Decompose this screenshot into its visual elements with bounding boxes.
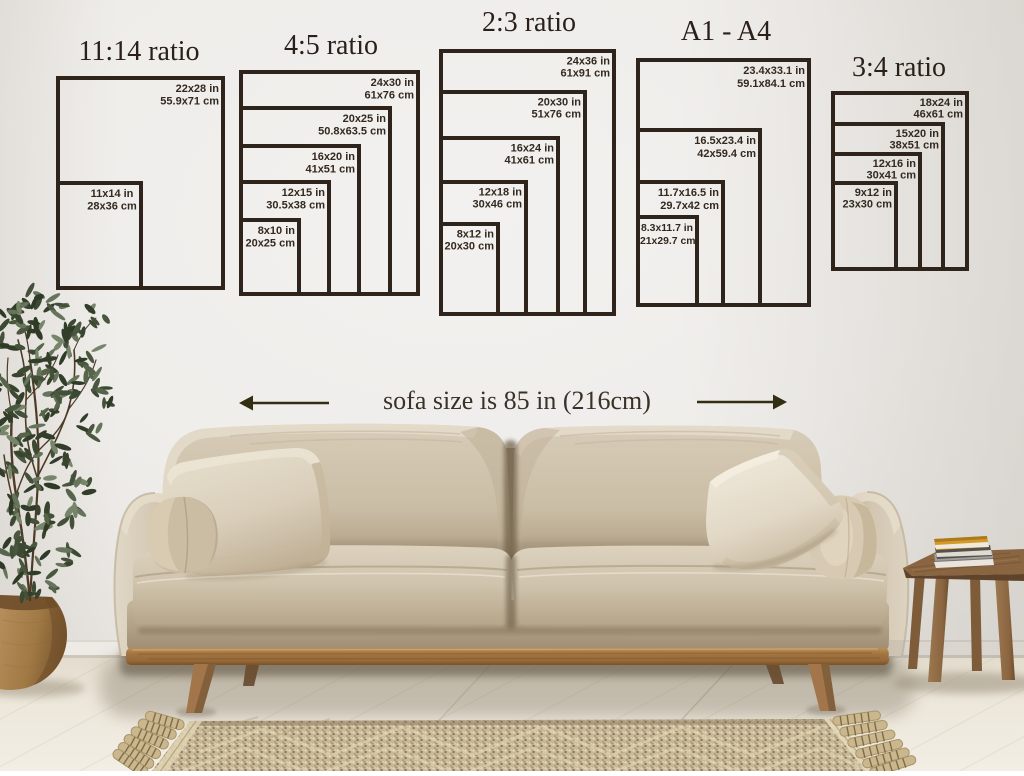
svg-text:8x10 in: 8x10 in xyxy=(258,225,296,237)
svg-text:20x30 cm: 20x30 cm xyxy=(444,241,494,253)
svg-text:4:5 ratio: 4:5 ratio xyxy=(284,30,378,61)
svg-text:59.1x84.1 cm: 59.1x84.1 cm xyxy=(737,78,805,90)
svg-text:8.3x11.7 in: 8.3x11.7 in xyxy=(641,223,693,234)
svg-text:16x24 in: 16x24 in xyxy=(511,143,555,155)
svg-text:61x91 cm: 61x91 cm xyxy=(560,68,610,80)
svg-text:11.7x16.5 in: 11.7x16.5 in xyxy=(658,187,719,199)
svg-text:46x61 cm: 46x61 cm xyxy=(913,109,963,121)
svg-text:16x20 in: 16x20 in xyxy=(312,151,356,163)
svg-text:16.5x23.4 in: 16.5x23.4 in xyxy=(694,135,756,147)
svg-text:12x18 in: 12x18 in xyxy=(479,187,523,199)
svg-text:50.8x63.5 cm: 50.8x63.5 cm xyxy=(318,126,386,138)
svg-text:20x25 in: 20x25 in xyxy=(343,113,387,125)
svg-text:41x61 cm: 41x61 cm xyxy=(504,155,554,167)
svg-text:23.4x33.1 in: 23.4x33.1 in xyxy=(743,65,805,77)
svg-text:30.5x38 cm: 30.5x38 cm xyxy=(266,200,325,212)
svg-text:15x20 in: 15x20 in xyxy=(896,128,940,140)
svg-text:29.7x42 cm: 29.7x42 cm xyxy=(660,200,719,212)
svg-text:3:4 ratio: 3:4 ratio xyxy=(852,52,946,83)
svg-text:11:14 ratio: 11:14 ratio xyxy=(78,36,199,67)
svg-text:38x51 cm: 38x51 cm xyxy=(889,140,939,152)
svg-text:24x36 in: 24x36 in xyxy=(567,56,611,68)
svg-text:55.9x71 cm: 55.9x71 cm xyxy=(160,96,219,108)
svg-text:2:3 ratio: 2:3 ratio xyxy=(482,7,576,38)
svg-text:30x41 cm: 30x41 cm xyxy=(866,170,916,182)
svg-text:8x12 in: 8x12 in xyxy=(457,229,495,241)
svg-text:23x30 cm: 23x30 cm xyxy=(842,199,892,211)
svg-text:51x76 cm: 51x76 cm xyxy=(531,109,581,121)
svg-text:A1 - A4: A1 - A4 xyxy=(681,16,771,47)
svg-text:11x14 in: 11x14 in xyxy=(91,188,134,200)
svg-text:61x76 cm: 61x76 cm xyxy=(364,90,414,102)
svg-text:42x59.4 cm: 42x59.4 cm xyxy=(697,148,756,160)
svg-text:12x15 in: 12x15 in xyxy=(282,187,326,199)
svg-text:28x36 cm: 28x36 cm xyxy=(87,201,137,213)
svg-text:18x24 in: 18x24 in xyxy=(920,97,964,109)
svg-text:22x28 in: 22x28 in xyxy=(176,83,220,95)
svg-text:24x30 in: 24x30 in xyxy=(371,77,415,89)
svg-text:20x30 in: 20x30 in xyxy=(538,97,582,109)
svg-text:9x12 in: 9x12 in xyxy=(855,187,893,199)
svg-text:41x51 cm: 41x51 cm xyxy=(305,164,355,176)
svg-text:30x46 cm: 30x46 cm xyxy=(472,199,522,211)
svg-text:sofa size is 85 in (216cm): sofa size is 85 in (216cm) xyxy=(383,386,651,415)
svg-text:20x25 cm: 20x25 cm xyxy=(245,238,295,250)
svg-text:12x16 in: 12x16 in xyxy=(873,158,917,170)
svg-text:21x29.7 cm: 21x29.7 cm xyxy=(640,236,695,247)
